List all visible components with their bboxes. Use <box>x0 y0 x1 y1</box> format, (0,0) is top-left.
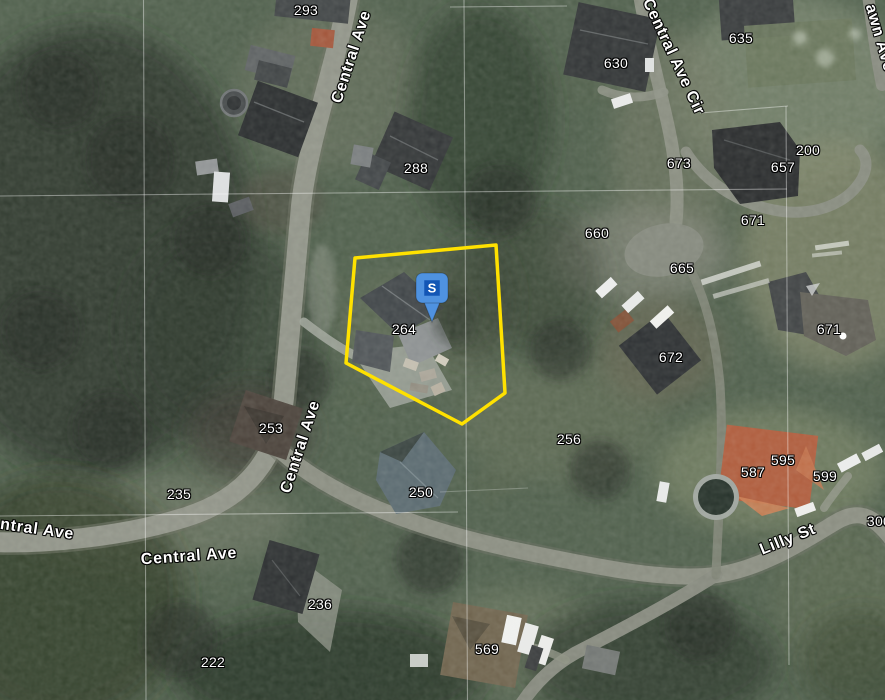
marker-label: S <box>428 281 437 296</box>
satellite-map-view[interactable]: S 29328863563020065767367166066567126467… <box>0 0 885 700</box>
satellite-imagery: S <box>0 0 885 700</box>
